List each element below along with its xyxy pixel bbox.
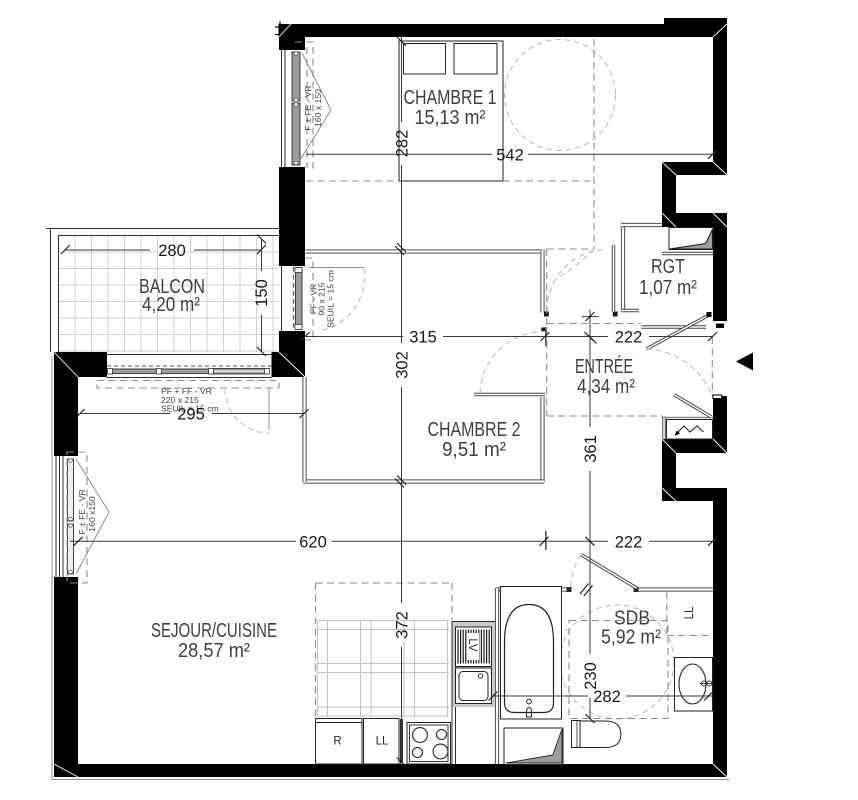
- svg-text:CHAMBRE 2: CHAMBRE 2: [428, 419, 521, 441]
- svg-text:160 x 150: 160 x 150: [313, 89, 323, 127]
- svg-text:160 x150: 160 x150: [87, 496, 97, 532]
- svg-text:302: 302: [394, 351, 412, 379]
- svg-text:SEJOUR/CUISINE: SEJOUR/CUISINE: [151, 620, 277, 642]
- svg-text:315: 315: [409, 329, 437, 347]
- svg-text:R: R: [333, 736, 341, 748]
- svg-text:SEUIL = 15 cm: SEUIL = 15 cm: [326, 270, 336, 328]
- svg-text:LL: LL: [684, 606, 696, 619]
- svg-text:1,07 m²: 1,07 m²: [639, 277, 697, 299]
- svg-text:295: 295: [177, 406, 205, 424]
- svg-text:F ± FE - VR: F ± FE - VR: [303, 85, 313, 130]
- svg-text:RGT: RGT: [651, 256, 685, 278]
- svg-text:361: 361: [582, 435, 600, 463]
- svg-text:ENTRÉE: ENTRÉE: [575, 355, 633, 378]
- svg-text:542: 542: [496, 146, 524, 164]
- svg-text:9,51 m²: 9,51 m²: [442, 439, 506, 461]
- svg-text:28,57 m²: 28,57 m²: [178, 640, 250, 662]
- svg-text:282: 282: [593, 688, 621, 706]
- svg-text:150: 150: [253, 279, 271, 307]
- svg-text:4,34 m²: 4,34 m²: [577, 376, 635, 398]
- svg-text:F ± FE - VR: F ± FE - VR: [77, 489, 87, 534]
- svg-text:LL: LL: [376, 736, 389, 748]
- svg-text:282: 282: [394, 130, 412, 158]
- svg-text:230: 230: [582, 662, 600, 690]
- svg-text:5,92 m²: 5,92 m²: [601, 627, 661, 649]
- svg-text:LV: LV: [466, 638, 478, 652]
- svg-text:620: 620: [299, 533, 327, 551]
- svg-text:4,20 m²: 4,20 m²: [142, 294, 200, 316]
- svg-text:15,13 m²: 15,13 m²: [415, 107, 486, 129]
- svg-text:372: 372: [394, 611, 412, 639]
- svg-text:222: 222: [615, 533, 643, 551]
- svg-text:222: 222: [615, 329, 643, 347]
- svg-text:280: 280: [158, 242, 186, 260]
- svg-text:CHAMBRE 1: CHAMBRE 1: [404, 87, 497, 109]
